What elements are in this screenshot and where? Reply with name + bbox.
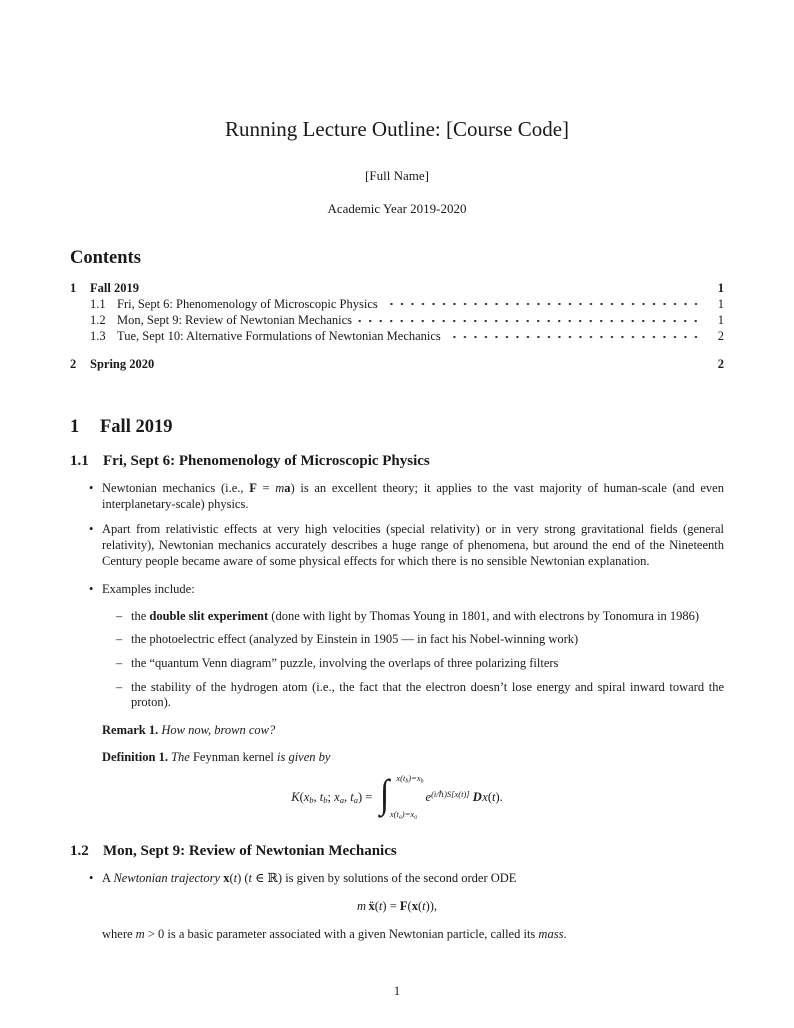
text-segment: (i/ℏ)S[x(t)]: [431, 789, 470, 799]
text-segment: =: [257, 481, 275, 495]
sub-bullet-venn-diagram: – the “quantum Venn diagram” puzzle, inv…: [70, 656, 724, 672]
bullet-text: Apart from relativistic effects at very …: [102, 522, 724, 567]
section-heading-fall-2019: 1 Fall 2019: [70, 416, 724, 438]
toc-entry-sept-10[interactable]: 1.3 Tue, Sept 10: Alternative Formulatio…: [70, 329, 724, 345]
sub-bullet-text: the photoelectric effect (analyzed by Ei…: [131, 632, 578, 646]
remark-paragraph: Remark 1. How now, brown cow?: [70, 723, 724, 739]
toc-entry-sept-9[interactable]: 1.2 Mon, Sept 9: Review of Newtonian Mec…: [70, 313, 724, 329]
toc-entry-label: Spring 2020: [90, 357, 154, 373]
text-segment: K: [291, 790, 299, 804]
sub-bullet-text: the stability of the hydrogen atom (i.e.…: [131, 680, 724, 710]
bullet-text: A Newtonian trajectory x(t) (t ∈ ℝ) is g…: [102, 871, 516, 885]
text-segment: F: [249, 481, 257, 495]
text-segment: a: [414, 814, 417, 820]
text-segment: A: [102, 871, 113, 885]
sub-bullet-text: the “quantum Venn diagram” puzzle, invol…: [131, 656, 558, 670]
subsection-number: 1.1: [70, 452, 103, 471]
dash-marker: –: [116, 632, 122, 648]
text-segment: ) =: [382, 899, 399, 913]
subsection-heading-phenomenology: 1.1 Fri, Sept 6: Phenomenology of Micros…: [70, 452, 724, 471]
sub-bullet-photoelectric: – the photoelectric effect (analyzed by …: [70, 632, 724, 648]
toc-entry-label: Fall 2019: [90, 281, 139, 297]
toc-entry-page: 2: [710, 357, 724, 373]
section-number: 1: [70, 416, 100, 438]
toc-entry-page: 2: [710, 329, 724, 345]
toc-leader-dots: [357, 315, 703, 329]
definition-text: The Feynman kernel is given by: [168, 750, 330, 764]
text-segment: )=: [408, 773, 417, 783]
text-segment: Newtonian trajectory: [113, 871, 220, 885]
title-block: Running Lecture Outline: [Course Code] […: [0, 0, 794, 216]
text-segment: > 0 is a basic parameter associated with…: [145, 927, 539, 941]
text-segment: )),: [426, 899, 437, 913]
toc-leader-dots: [144, 282, 703, 296]
bullet-marker: •: [89, 522, 93, 538]
dash-marker: –: [116, 609, 122, 625]
text-segment: m: [275, 481, 284, 495]
bullet-marker: •: [89, 871, 93, 887]
definition-paragraph: Definition 1. The Feynman kernel is give…: [70, 750, 724, 766]
integral-sign: ∫: [380, 774, 389, 822]
toc-entry-number: 2: [70, 357, 90, 373]
document-date: Academic Year 2019-2020: [0, 201, 794, 217]
toc-entry-label: Fri, Sept 6: Phenomenology of Microscopi…: [117, 297, 378, 313]
toc-leader-dots: [446, 331, 703, 345]
text-segment: Apart from relativistic effects at very …: [102, 522, 724, 567]
bullet-item-newtonian-trajectory: • A Newtonian trajectory x(t) (t ∈ ℝ) is…: [70, 871, 724, 887]
remark-label: Remark 1.: [102, 723, 158, 737]
text-segment: the “quantum Venn diagram” puzzle, invol…: [131, 656, 558, 670]
text-segment: where: [102, 927, 136, 941]
text-segment: Feynman kernel: [193, 750, 274, 764]
toc-entry-page: 1: [710, 281, 724, 297]
dash-marker: –: [116, 680, 122, 696]
text-segment: m: [357, 899, 366, 913]
text-segment: ) (: [237, 871, 248, 885]
bullet-item-examples-include: • Examples include:: [70, 582, 724, 598]
toc-entry-spring-2020[interactable]: 2 Spring 2020 2: [70, 357, 724, 373]
text-segment: mass: [538, 927, 563, 941]
text-segment: b: [421, 778, 424, 784]
section-title: Fall 2019: [100, 416, 172, 438]
text-segment: is given by: [274, 750, 331, 764]
sub-bullet-double-slit: – the double slit experiment (done with …: [70, 609, 724, 625]
text-segment: .: [563, 927, 566, 941]
sub-bullet-text: the double slit experiment (done with li…: [131, 609, 699, 623]
bullet-marker: •: [89, 582, 93, 598]
toc-entry-fall-2019[interactable]: 1 Fall 2019 1: [70, 281, 724, 297]
remark-text: How now, brown cow?: [158, 723, 275, 737]
text-segment: the stability of the hydrogen atom (i.e.…: [131, 680, 724, 710]
toc-entry-number: 1.1: [90, 297, 117, 313]
text-segment: ) =: [358, 790, 375, 804]
document-author: [Full Name]: [0, 168, 794, 184]
text-segment: The: [168, 750, 193, 764]
toc-leader-dots: [383, 298, 703, 312]
subsection-title: Mon, Sept 9: Review of Newtonian Mechani…: [103, 842, 397, 861]
toc-leader-dots: [159, 358, 703, 372]
newton-second-law-equation: m ẍ(t) = F(x(t)),: [70, 899, 724, 915]
toc-entry-number: 1.2: [90, 313, 117, 329]
table-of-contents: 1 Fall 2019 1 1.1 Fri, Sept 6: Phenomeno…: [70, 281, 724, 372]
bullet-text: Examples include:: [102, 582, 195, 596]
text-segment: ).: [495, 790, 502, 804]
equation-rhs: e(i/ℏ)S[x(t)] Dx(t).: [426, 790, 503, 804]
toc-entry-page: 1: [710, 297, 724, 313]
definition-label: Definition 1.: [102, 750, 168, 764]
text-segment: How now, brown cow?: [158, 723, 275, 737]
text-segment: the photoelectric effect (analyzed by Ei…: [131, 632, 578, 646]
toc-entry-label: Mon, Sept 9: Review of Newtonian Mechani…: [117, 313, 352, 329]
text-segment: double slit experiment: [149, 609, 268, 623]
text-segment: the: [131, 609, 149, 623]
text-segment: F: [400, 899, 408, 913]
integral-lower-limit: x(ta)=xa: [383, 810, 423, 822]
text-segment: m: [136, 927, 145, 941]
subsection-heading-newtonian-review: 1.2 Mon, Sept 9: Review of Newtonian Mec…: [70, 842, 724, 861]
document-title: Running Lecture Outline: [Course Code]: [0, 116, 794, 142]
equation-lhs: K(xb, tb; xa, ta) =: [291, 790, 375, 804]
text-segment: ∈ ℝ) is given by solutions of the second…: [252, 871, 516, 885]
integral-limits: x(tb)=xbx(ta)=xa: [390, 774, 423, 822]
bullet-item-newtonian-excellent: • Newtonian mechanics (i.e., F = ma) is …: [70, 481, 724, 512]
text-segment: Examples include:: [102, 582, 195, 596]
text-segment: D: [473, 790, 483, 804]
text-segment: (done with light by Thomas Young in 1801…: [268, 609, 699, 623]
sub-bullet-hydrogen-atom: – the stability of the hydrogen atom (i.…: [70, 680, 724, 711]
bullet-text: Newtonian mechanics (i.e., F = ma) is an…: [102, 481, 724, 511]
mass-parameter-paragraph: where m > 0 is a basic parameter associa…: [70, 927, 724, 943]
bullet-item-relativistic-effects: • Apart from relativistic effects at ver…: [70, 522, 724, 569]
subsection-title: Fri, Sept 6: Phenomenology of Microscopi…: [103, 452, 430, 471]
integral-upper-limit: x(tb)=xb: [396, 774, 423, 786]
integral: ∫x(tb)=xbx(ta)=xa: [379, 774, 423, 822]
toc-entry-label: Tue, Sept 10: Alternative Formulations o…: [117, 329, 441, 345]
toc-entry-number: 1: [70, 281, 90, 297]
toc-entry-sept-6[interactable]: 1.1 Fri, Sept 6: Phenomenology of Micros…: [70, 297, 724, 313]
subsection-number: 1.2: [70, 842, 103, 861]
dash-marker: –: [116, 656, 122, 672]
contents-heading: Contents: [70, 251, 724, 267]
text-segment: Newtonian mechanics (i.e.,: [102, 481, 249, 495]
page-number: 1: [0, 984, 794, 1000]
document-page: Running Lecture Outline: [Course Code] […: [0, 0, 794, 1028]
bullet-marker: •: [89, 481, 93, 497]
toc-entry-number: 1.3: [90, 329, 117, 345]
feynman-kernel-equation: K(xb, tb; xa, ta) = ∫x(tb)=xbx(ta)=xae(i…: [70, 774, 724, 822]
toc-entry-page: 1: [710, 313, 724, 329]
